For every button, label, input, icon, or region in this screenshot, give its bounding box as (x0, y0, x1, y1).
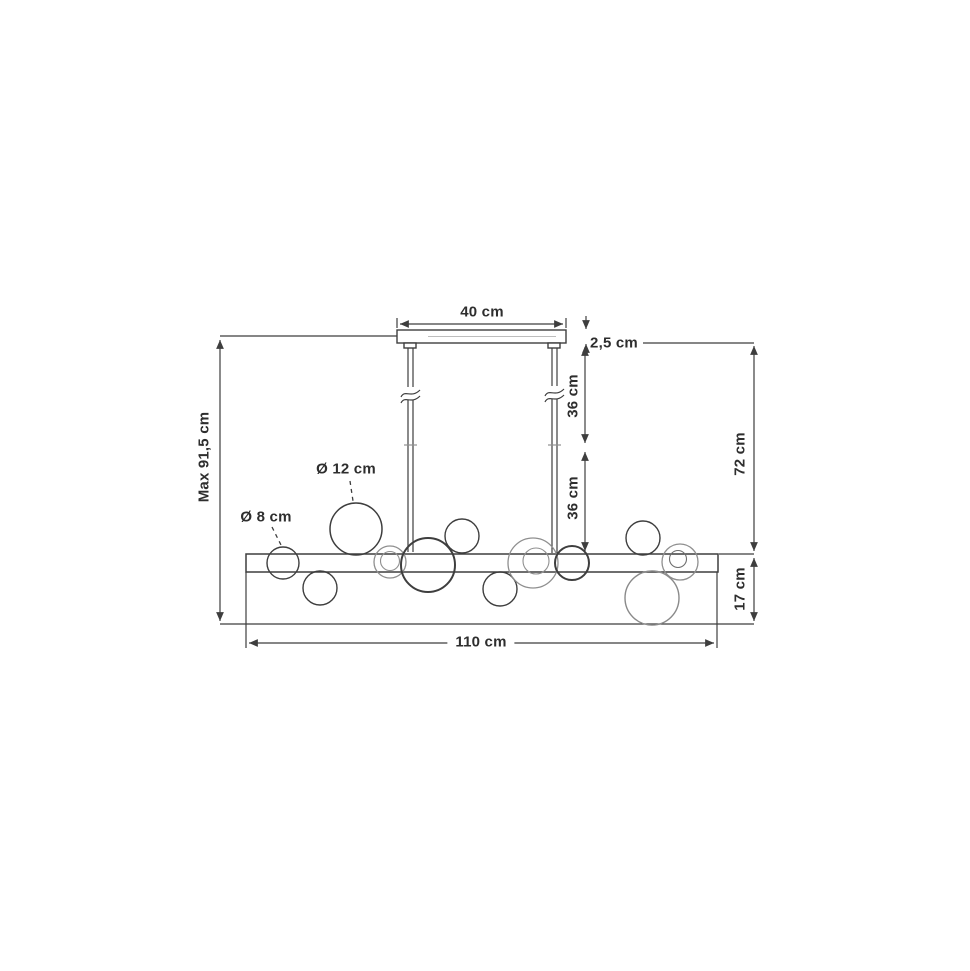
glass-globes (267, 503, 698, 625)
globe-behind-rod (508, 538, 558, 588)
globe-below-left (303, 571, 337, 605)
globe-large-bottom-right (625, 571, 679, 625)
rod-break-icon (545, 395, 564, 402)
globe-small-left (267, 547, 299, 579)
label-canopy-width: 40 cm (460, 305, 504, 320)
globe-large-center (401, 538, 455, 592)
label-globe-large-diameter: Ø 12 cm (316, 462, 376, 477)
reference-lines (220, 336, 754, 648)
leader-globe-large (350, 481, 353, 501)
diagram-linework (0, 0, 970, 971)
label-fixture-height: 17 cm (733, 567, 748, 611)
label-max-height: Max 91,5 cm (197, 412, 212, 503)
label-drop-height: 72 cm (733, 432, 748, 476)
label-globe-small-diameter: Ø 8 cm (240, 510, 291, 525)
suspension-rods (401, 348, 564, 553)
rod-mount-left (404, 343, 416, 348)
rod-break-icon (545, 389, 564, 396)
globe-large-top (330, 503, 382, 555)
lamp-bar (246, 554, 718, 572)
globe-above-right (626, 521, 660, 555)
leader-globe-small (272, 527, 281, 545)
label-bar-width: 110 cm (447, 635, 514, 650)
globe-inner-bulb (670, 551, 687, 568)
rod-break-icon (401, 390, 420, 397)
label-rod-lower: 36 cm (566, 476, 581, 520)
dimension-diagram: 40 cm 2,5 cm 36 cm 36 cm 72 cm 17 cm Max… (0, 0, 970, 971)
ceiling-canopy (397, 330, 566, 348)
globe-inner-bulb (523, 548, 549, 574)
rod-mount-right (548, 343, 560, 348)
globe-above-center (445, 519, 479, 553)
globe-straddle-right (662, 544, 698, 580)
label-rod-upper: 36 cm (566, 374, 581, 418)
label-canopy-height: 2,5 cm (590, 336, 638, 351)
globe-on-bar-right (555, 546, 589, 580)
rod-break-icon (401, 396, 420, 403)
